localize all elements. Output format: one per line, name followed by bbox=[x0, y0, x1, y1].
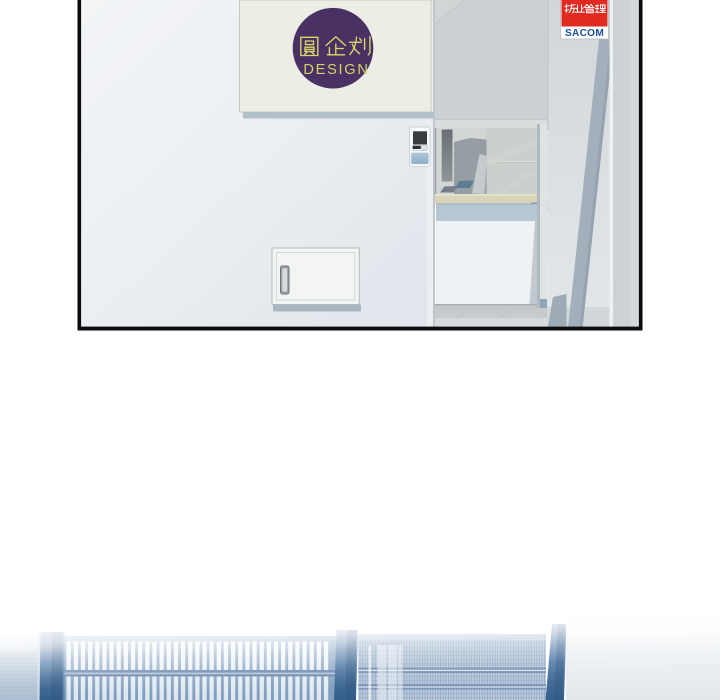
svg-text:DESIGN: DESIGN bbox=[303, 62, 369, 78]
svg-text:SACOM: SACOM bbox=[565, 28, 604, 39]
